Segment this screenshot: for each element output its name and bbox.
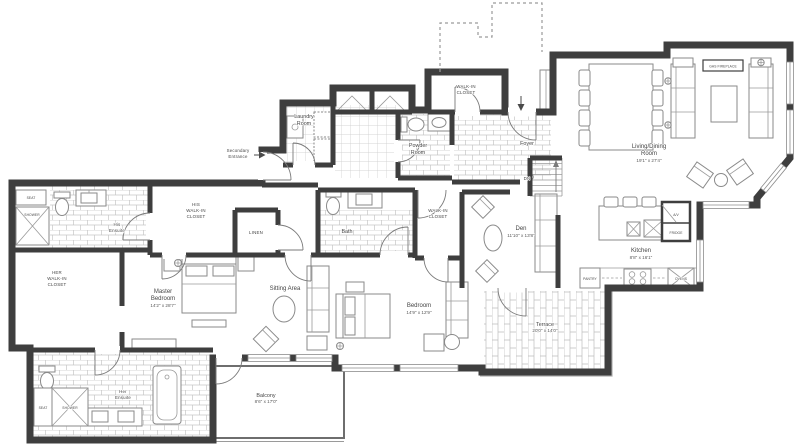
entry-wic-label: WALK-IN [456,84,476,89]
shower-bottom-label: SHOWER [62,406,78,410]
his-wic-label: HIS [192,202,200,207]
bathtub [153,366,181,424]
vanity-sink [76,190,106,206]
bedroom-sofa [446,282,468,338]
hall-floor [335,105,396,178]
laundry-room-label: Laundry [294,114,314,120]
svg-text:WALK-IN: WALK-IN [186,208,206,213]
den-label: Den [515,226,526,232]
seat-top-label: SEAT [27,196,36,200]
bath-label: Bath [341,229,352,235]
svg-text:Room: Room [411,150,426,156]
svg-text:20'0" x 14'0": 20'0" x 14'0" [532,328,558,333]
svg-text:Bedroom: Bedroom [151,296,175,302]
toilet-fixture [326,191,341,215]
svg-text:Room: Room [297,121,312,127]
svg-text:CLOSET: CLOSET [48,282,67,287]
foyer-label: Foyer [520,141,534,147]
upper-level-dashed-outline [440,3,542,72]
light-icon [665,122,671,128]
svg-text:14'2" x 28'7": 14'2" x 28'7" [150,303,176,308]
svg-text:19'1" x 27'4": 19'1" x 27'4" [636,158,662,163]
master-bedroom-label: Master [154,289,172,295]
bedroom-bed [336,294,390,338]
bath-floor [320,210,413,253]
his-ensuite-label: His [114,222,122,227]
master-dresser [132,339,176,348]
her-wic-label: HER [52,270,62,275]
vanity-sink [84,408,142,426]
light-icon [758,59,764,65]
side-table [445,335,460,350]
svg-text:8'6" x 17'0": 8'6" x 17'0" [255,399,278,404]
sitting-area-label: Sitting Area [270,286,301,292]
svg-text:CLOSET: CLOSET [187,214,206,219]
gas-fireplace-label: GAS FIREPLACE [709,65,737,69]
pantry-label: PANTRY [583,277,597,281]
toilet-fixture [54,192,70,216]
ovens-label: OVENS [675,277,688,281]
nightstand [346,282,364,292]
bedroom-chair [424,334,444,351]
her-ensuite-label: Her [119,389,127,394]
stairs-dn-label: DN [524,176,531,181]
kitchen-island [599,197,665,240]
svg-text:Entrance: Entrance [228,154,248,159]
vanity-sink [348,191,382,208]
fridge-label: FRIDGE [669,231,683,235]
bedroom-label: Bedroom [407,303,431,309]
toilet-fixture [39,366,55,390]
floor-plan-page: SEAT SHOWER His Ensuite HIS WALK-IN CLOS… [0,0,800,447]
bedroom-wic-label: WALK-IN [428,208,448,213]
svg-text:8'8" x 16'1": 8'8" x 16'1" [630,255,653,260]
light-icon [337,343,344,350]
powder-room-label: Powder [409,143,427,149]
svg-text:Room: Room [641,151,657,157]
secondary-entrance-label: Secondary [227,148,250,153]
linen-label: LINEN [249,230,263,235]
svg-text:11'10" x 13'8": 11'10" x 13'8" [507,233,535,238]
svg-text:Ensuite: Ensuite [109,228,125,233]
kitchen-label: Kitchen [631,248,651,254]
svg-text:CLOSET: CLOSET [429,214,448,219]
av-label: A/V [673,213,679,217]
svg-text:Ensuite: Ensuite [115,395,131,400]
nightstand [238,257,254,271]
seat-bottom-label: SEAT [39,406,48,410]
dining-set [579,64,663,150]
light-icon [175,260,182,267]
av-fridge-closet [662,202,690,241]
living-dining-label: Living/Dining [632,144,666,150]
shower-top-label: SHOWER [24,213,40,217]
light-icon [665,78,671,84]
toilet-fixture [401,117,424,132]
floor-plan-drawing: SEAT SHOWER His Ensuite HIS WALK-IN CLOS… [0,0,800,447]
svg-text:WALK-IN: WALK-IN [47,276,67,281]
vanity-sink [428,114,450,131]
svg-text:14'9" x 12'9": 14'9" x 12'9" [406,310,432,315]
svg-text:CLOSET: CLOSET [457,90,476,95]
